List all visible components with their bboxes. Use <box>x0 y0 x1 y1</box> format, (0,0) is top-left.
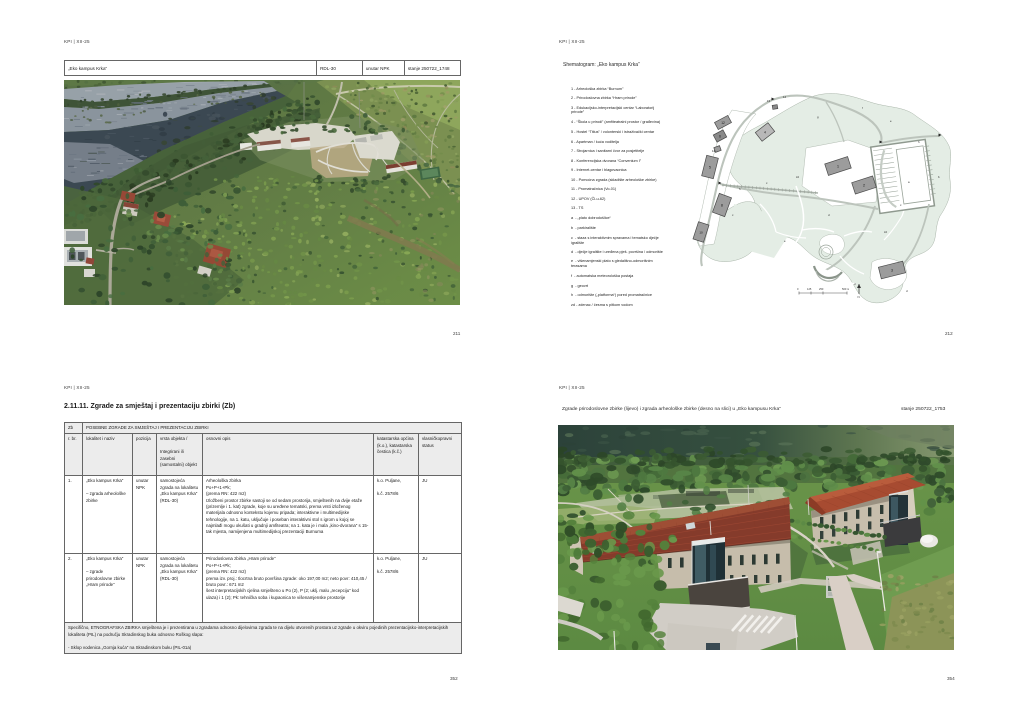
svg-text:125: 125 <box>807 287 812 291</box>
svg-text:2: 2 <box>863 183 865 187</box>
svg-text:N: N <box>858 295 860 299</box>
svg-text:500 m: 500 m <box>842 287 849 291</box>
svg-text:3: 3 <box>891 268 893 272</box>
svg-text:14: 14 <box>783 95 787 99</box>
svg-text:4: 4 <box>764 130 766 134</box>
svg-text:6: 6 <box>719 134 721 138</box>
svg-text:250: 250 <box>819 287 824 291</box>
svg-text:12: 12 <box>721 121 725 125</box>
svg-text:8: 8 <box>721 203 723 207</box>
svg-text:5: 5 <box>709 165 711 169</box>
svg-text:1: 1 <box>837 164 839 168</box>
svg-text:zd: zd <box>884 230 887 234</box>
svg-text:10: 10 <box>699 230 703 234</box>
svg-text:zd: zd <box>796 175 799 179</box>
svg-text:11: 11 <box>712 149 715 153</box>
svg-text:13: 13 <box>767 99 771 103</box>
svg-text:d: d <box>906 289 908 293</box>
svg-text:0: 0 <box>797 287 799 291</box>
